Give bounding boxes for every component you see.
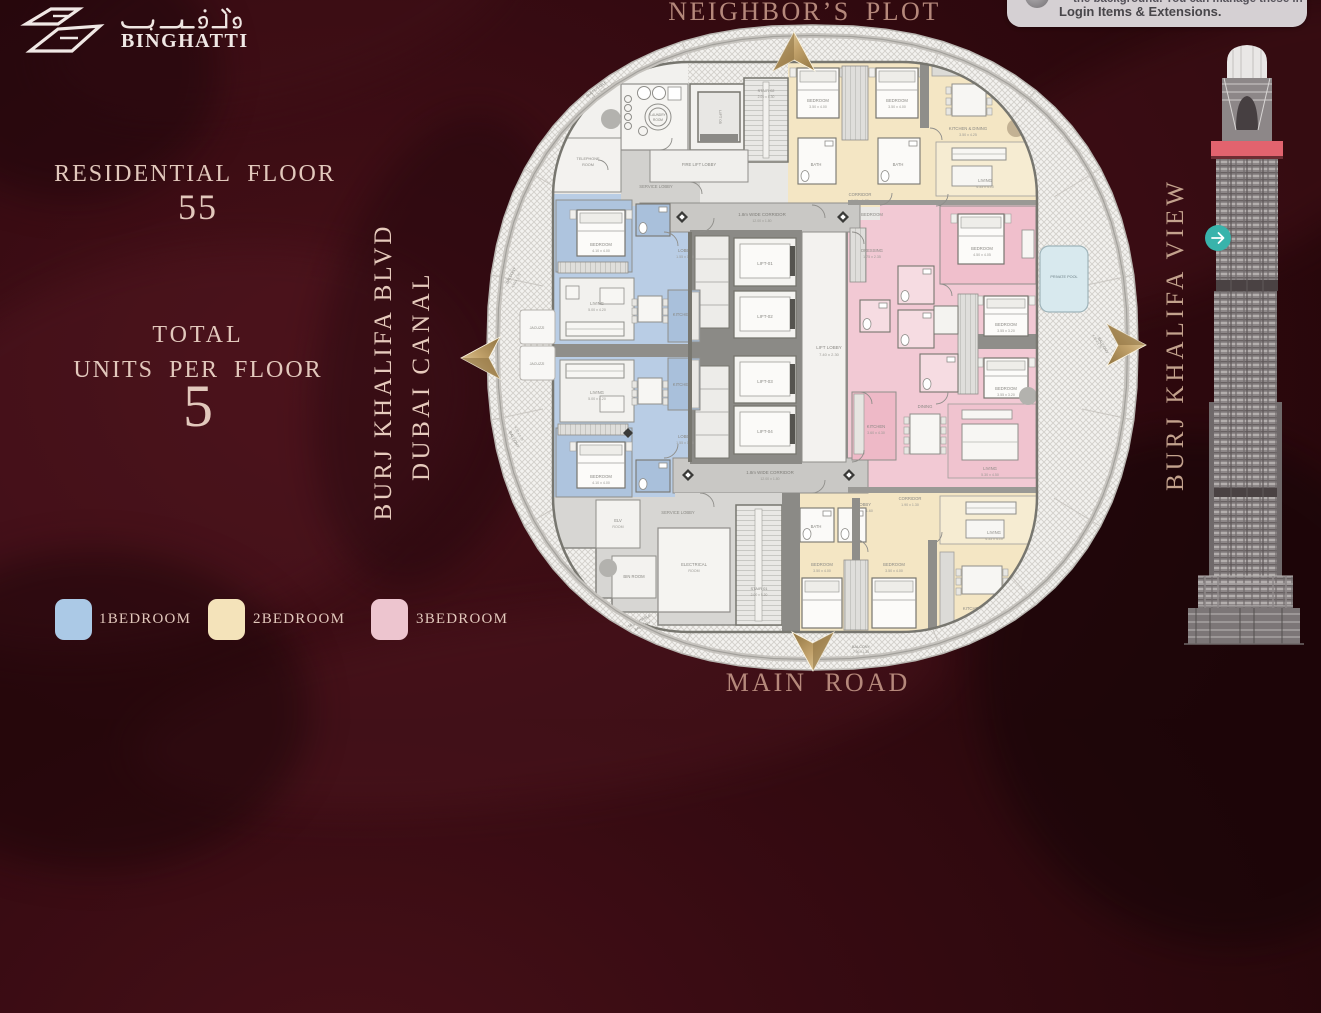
svg-text:ROOM: ROOM bbox=[688, 569, 699, 573]
svg-text:FIRE LIFT LOBBY: FIRE LIFT LOBBY bbox=[682, 162, 717, 167]
svg-text:BEDROOM: BEDROOM bbox=[590, 242, 612, 247]
svg-text:ROOM: ROOM bbox=[653, 118, 663, 122]
svg-text:CORRIDOR: CORRIDOR bbox=[849, 192, 872, 197]
svg-text:1.8m WIDE CORRIDOR: 1.8m WIDE CORRIDOR bbox=[738, 212, 786, 217]
svg-text:4.50 x 4.05: 4.50 x 4.05 bbox=[973, 253, 991, 257]
svg-text:LIVING: LIVING bbox=[590, 390, 604, 395]
svg-text:BEDROOM: BEDROOM bbox=[811, 562, 833, 567]
svg-text:5.30 x 4.50: 5.30 x 4.50 bbox=[981, 473, 999, 477]
svg-text:LIFT-03: LIFT-03 bbox=[757, 379, 773, 384]
svg-text:ELV: ELV bbox=[614, 518, 622, 523]
svg-text:BATH: BATH bbox=[811, 524, 822, 529]
svg-text:3.55 x 3.20: 3.55 x 3.20 bbox=[997, 393, 1015, 397]
svg-text:1.90 x 1.30: 1.90 x 1.30 bbox=[901, 503, 919, 507]
svg-text:BEDROOM: BEDROOM bbox=[590, 474, 612, 479]
svg-text:BEDROOM: BEDROOM bbox=[886, 98, 908, 103]
svg-text:SERVICE LOBBY: SERVICE LOBBY bbox=[661, 510, 695, 515]
svg-text:3.50 x 4.00: 3.50 x 4.00 bbox=[813, 569, 831, 573]
svg-text:LIFT-02: LIFT-02 bbox=[757, 314, 773, 319]
svg-text:SERVICE LOBBY: SERVICE LOBBY bbox=[639, 184, 673, 189]
svg-text:5.00 x 4.20: 5.00 x 4.20 bbox=[588, 308, 606, 312]
svg-text:BEDROOM: BEDROOM bbox=[861, 212, 883, 217]
svg-text:LIVING: LIVING bbox=[987, 530, 1001, 535]
svg-text:DRESSING: DRESSING bbox=[861, 248, 883, 253]
svg-text:4.55 x 4.10: 4.55 x 4.10 bbox=[976, 185, 994, 189]
svg-text:3.50 x 4.00: 3.50 x 4.00 bbox=[885, 569, 903, 573]
svg-text:2.00 x 5.30: 2.00 x 5.30 bbox=[758, 95, 775, 99]
svg-text:3.50 x 4.25: 3.50 x 4.25 bbox=[959, 133, 977, 137]
svg-text:BALCONY: BALCONY bbox=[852, 645, 871, 649]
svg-text:BEDROOM: BEDROOM bbox=[807, 98, 829, 103]
svg-text:JACUZZI: JACUZZI bbox=[530, 326, 545, 330]
svg-text:7.90 x 1.35: 7.90 x 1.35 bbox=[853, 650, 869, 654]
svg-text:DINING: DINING bbox=[918, 404, 933, 409]
svg-text:7.40 x 2.30: 7.40 x 2.30 bbox=[819, 352, 840, 357]
svg-text:STAIR 01: STAIR 01 bbox=[750, 586, 768, 591]
svg-text:2.00 x 5.30: 2.00 x 5.30 bbox=[751, 593, 768, 597]
svg-text:BIN ROOM: BIN ROOM bbox=[623, 574, 645, 579]
svg-text:KITCHEN & DINING: KITCHEN & DINING bbox=[949, 126, 987, 131]
svg-text:4.55 x 4.10: 4.55 x 4.10 bbox=[985, 537, 1003, 541]
svg-text:STAIR 02: STAIR 02 bbox=[757, 88, 775, 93]
svg-text:12.00 x 1.80: 12.00 x 1.80 bbox=[760, 477, 779, 481]
svg-text:1.75 x 2.35: 1.75 x 2.35 bbox=[863, 255, 881, 259]
svg-text:4.10 x 4.00: 4.10 x 4.00 bbox=[592, 481, 610, 485]
svg-text:ROOM: ROOM bbox=[612, 525, 623, 529]
svg-text:5.00 x 4.20: 5.00 x 4.20 bbox=[588, 397, 606, 401]
svg-text:BEDROOM: BEDROOM bbox=[971, 246, 993, 251]
svg-text:BATH: BATH bbox=[893, 162, 904, 167]
svg-text:BATH: BATH bbox=[811, 162, 822, 167]
svg-text:KITCHEN: KITCHEN bbox=[867, 424, 885, 429]
svg-text:LIVING: LIVING bbox=[590, 301, 604, 306]
svg-text:12.00 x 1.80: 12.00 x 1.80 bbox=[752, 219, 771, 223]
svg-text:LIFT-04: LIFT-04 bbox=[757, 429, 773, 434]
svg-text:PRIVATE POOL: PRIVATE POOL bbox=[1050, 275, 1077, 279]
svg-text:BEDROOM: BEDROOM bbox=[883, 562, 905, 567]
svg-text:3.50 x 4.00: 3.50 x 4.00 bbox=[809, 105, 827, 109]
svg-text:BEDROOM: BEDROOM bbox=[995, 322, 1017, 327]
svg-text:3.60 x 4.30: 3.60 x 4.30 bbox=[867, 431, 885, 435]
svg-text:LIFT LOBBY: LIFT LOBBY bbox=[816, 345, 841, 350]
svg-text:JACUZZI: JACUZZI bbox=[530, 362, 545, 366]
svg-text:4.10 x 4.00: 4.10 x 4.00 bbox=[592, 249, 610, 253]
svg-text:BEDROOM: BEDROOM bbox=[995, 386, 1017, 391]
svg-text:LIFT-01: LIFT-01 bbox=[757, 261, 773, 266]
svg-text:ROOM: ROOM bbox=[582, 163, 594, 167]
svg-text:CORRIDOR: CORRIDOR bbox=[899, 496, 922, 501]
svg-text:LIFT 05: LIFT 05 bbox=[718, 110, 723, 124]
svg-text:3.55 x 3.20: 3.55 x 3.20 bbox=[997, 329, 1015, 333]
svg-text:LIVING: LIVING bbox=[983, 466, 997, 471]
svg-text:LIVING: LIVING bbox=[978, 178, 992, 183]
svg-text:TELEPHONE: TELEPHONE bbox=[577, 157, 600, 161]
svg-text:3.50 x 4.00: 3.50 x 4.00 bbox=[888, 105, 906, 109]
svg-text:LAUNDRY: LAUNDRY bbox=[650, 113, 666, 117]
svg-text:1.8m WIDE CORRIDOR: 1.8m WIDE CORRIDOR bbox=[746, 470, 794, 475]
svg-text:ELECTRICAL: ELECTRICAL bbox=[681, 562, 708, 567]
